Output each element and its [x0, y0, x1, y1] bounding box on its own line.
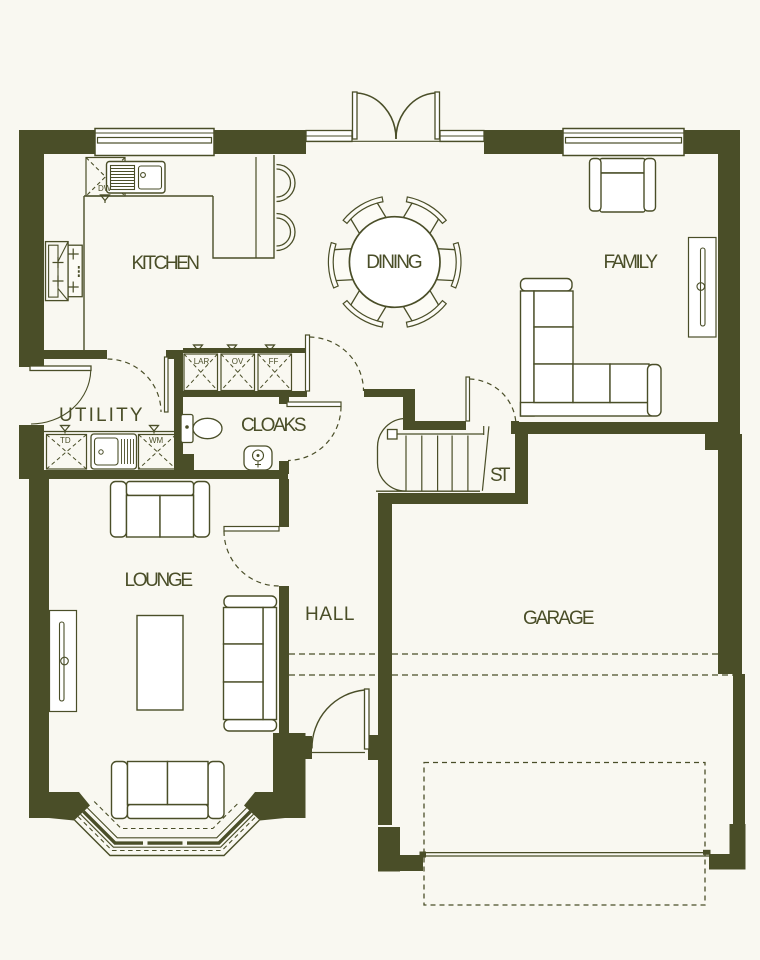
svg-text:LAR: LAR [194, 357, 210, 366]
svg-text:GARAGE: GARAGE [523, 608, 595, 629]
svg-text:FF: FF [269, 357, 279, 366]
svg-text:ST: ST [490, 465, 511, 486]
svg-text:CLOAKS: CLOAKS [241, 415, 307, 436]
svg-text:FAMILY: FAMILY [604, 252, 659, 273]
svg-text:DW: DW [98, 184, 112, 193]
svg-text:UTILITY: UTILITY [59, 405, 143, 426]
svg-text:TD: TD [60, 436, 71, 445]
svg-text:WM: WM [149, 436, 164, 445]
svg-text:HALL: HALL [305, 604, 355, 625]
svg-text:KITCHEN: KITCHEN [132, 253, 201, 274]
svg-text:OV: OV [232, 357, 244, 366]
svg-text:DINING: DINING [366, 252, 423, 273]
svg-text:LOUNGE: LOUNGE [125, 570, 194, 591]
